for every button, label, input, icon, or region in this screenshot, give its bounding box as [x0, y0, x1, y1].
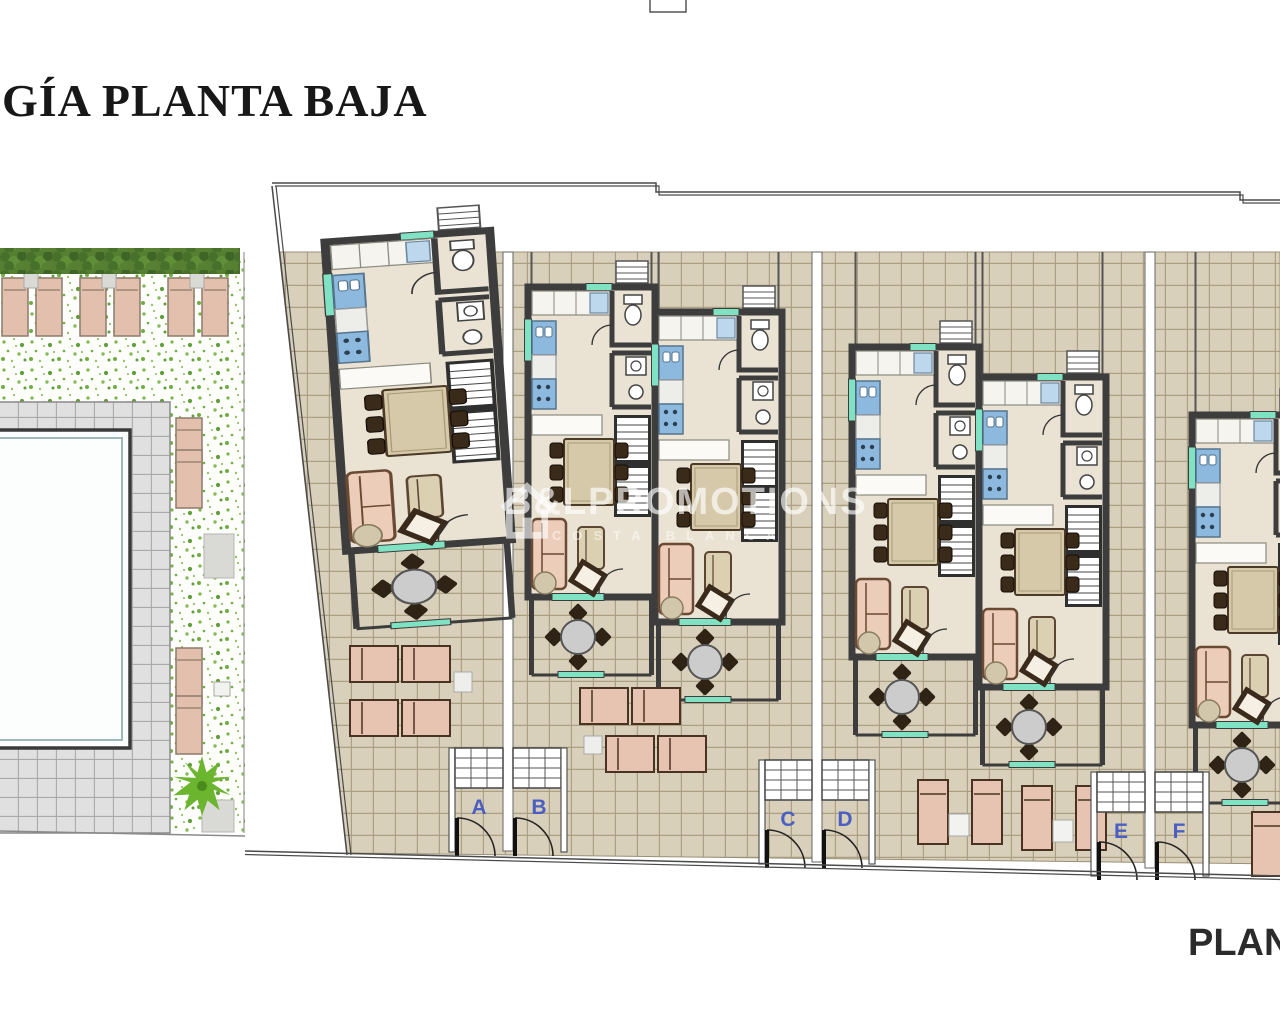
plan-caption: PLANT — [1188, 922, 1280, 965]
floor-plan-page: A B C D — [0, 0, 1280, 1024]
site-plan-drawing: A B C D — [0, 0, 1280, 1024]
garden — [0, 248, 245, 836]
entrance-label-e: E — [1114, 820, 1128, 843]
entrance-label-f: F — [1173, 820, 1186, 843]
entrance-label-a: A — [471, 796, 486, 819]
garden-loungers-top — [2, 272, 228, 336]
entrance-label-c: C — [780, 808, 795, 831]
entrance-label-d: D — [837, 808, 852, 831]
concrete-pad-2 — [202, 800, 234, 832]
entrance-label-b: B — [531, 796, 546, 819]
hedge — [0, 248, 240, 274]
concrete-pad-1 — [204, 534, 234, 578]
pool — [0, 430, 130, 748]
page-title: GÍA PLANTA BAJA — [2, 74, 428, 127]
